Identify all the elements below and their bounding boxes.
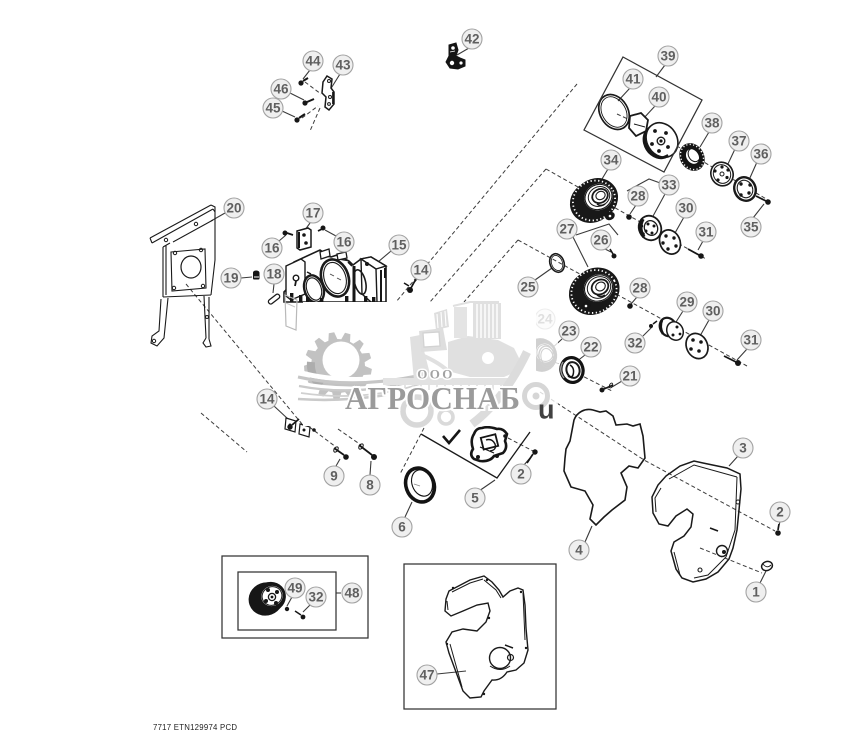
svg-text:48: 48 <box>344 586 360 601</box>
svg-text:28: 28 <box>632 281 648 296</box>
svg-text:40: 40 <box>651 90 666 105</box>
svg-text:43: 43 <box>335 58 351 73</box>
svg-text:ООО: ООО <box>417 367 455 382</box>
svg-text:39: 39 <box>660 49 675 64</box>
svg-text:9: 9 <box>330 469 338 484</box>
svg-text:30: 30 <box>678 201 693 216</box>
svg-text:5: 5 <box>471 491 479 506</box>
svg-text:28: 28 <box>630 189 646 204</box>
svg-text:4: 4 <box>575 543 583 558</box>
svg-text:30: 30 <box>705 304 720 319</box>
svg-text:20: 20 <box>226 201 241 216</box>
svg-text:u: u <box>538 395 555 425</box>
svg-text:32: 32 <box>627 336 642 351</box>
svg-text:18: 18 <box>266 267 282 282</box>
svg-text:41: 41 <box>625 72 641 87</box>
svg-text:49: 49 <box>287 581 302 596</box>
svg-text:8: 8 <box>366 478 374 493</box>
svg-text:1: 1 <box>752 585 760 600</box>
svg-text:31: 31 <box>698 225 714 240</box>
svg-text:36: 36 <box>753 147 769 162</box>
svg-text:31: 31 <box>743 333 759 348</box>
svg-text:АГРОСНАБ: АГРОСНАБ <box>345 381 520 416</box>
svg-text:37: 37 <box>731 134 746 149</box>
svg-text:29: 29 <box>679 295 694 310</box>
svg-text:33: 33 <box>661 178 677 193</box>
svg-text:22: 22 <box>583 340 598 355</box>
svg-text:25: 25 <box>520 280 536 295</box>
svg-text:17: 17 <box>305 206 320 221</box>
svg-text:34: 34 <box>603 153 619 168</box>
svg-text:23: 23 <box>561 324 577 339</box>
svg-text:44: 44 <box>305 54 321 69</box>
svg-text:46: 46 <box>273 82 289 97</box>
svg-text:32: 32 <box>308 590 323 605</box>
svg-text:38: 38 <box>704 116 720 131</box>
svg-text:42: 42 <box>464 32 479 47</box>
svg-text:16: 16 <box>336 235 352 250</box>
svg-text:6: 6 <box>398 520 406 535</box>
svg-text:15: 15 <box>391 238 407 253</box>
svg-text:27: 27 <box>559 222 574 237</box>
svg-text:14: 14 <box>259 392 275 407</box>
svg-text:2: 2 <box>776 505 784 520</box>
svg-text:14: 14 <box>413 263 429 278</box>
svg-text:7717 ETN129974 PCD: 7717 ETN129974 PCD <box>153 723 237 731</box>
svg-text:19: 19 <box>223 271 238 286</box>
svg-text:26: 26 <box>593 233 609 248</box>
svg-text:2: 2 <box>517 467 525 482</box>
svg-text:35: 35 <box>743 220 759 235</box>
svg-text:47: 47 <box>419 668 434 683</box>
svg-text:16: 16 <box>264 241 280 256</box>
svg-text:3: 3 <box>739 441 747 456</box>
svg-text:45: 45 <box>265 101 281 116</box>
svg-text:21: 21 <box>622 369 638 384</box>
